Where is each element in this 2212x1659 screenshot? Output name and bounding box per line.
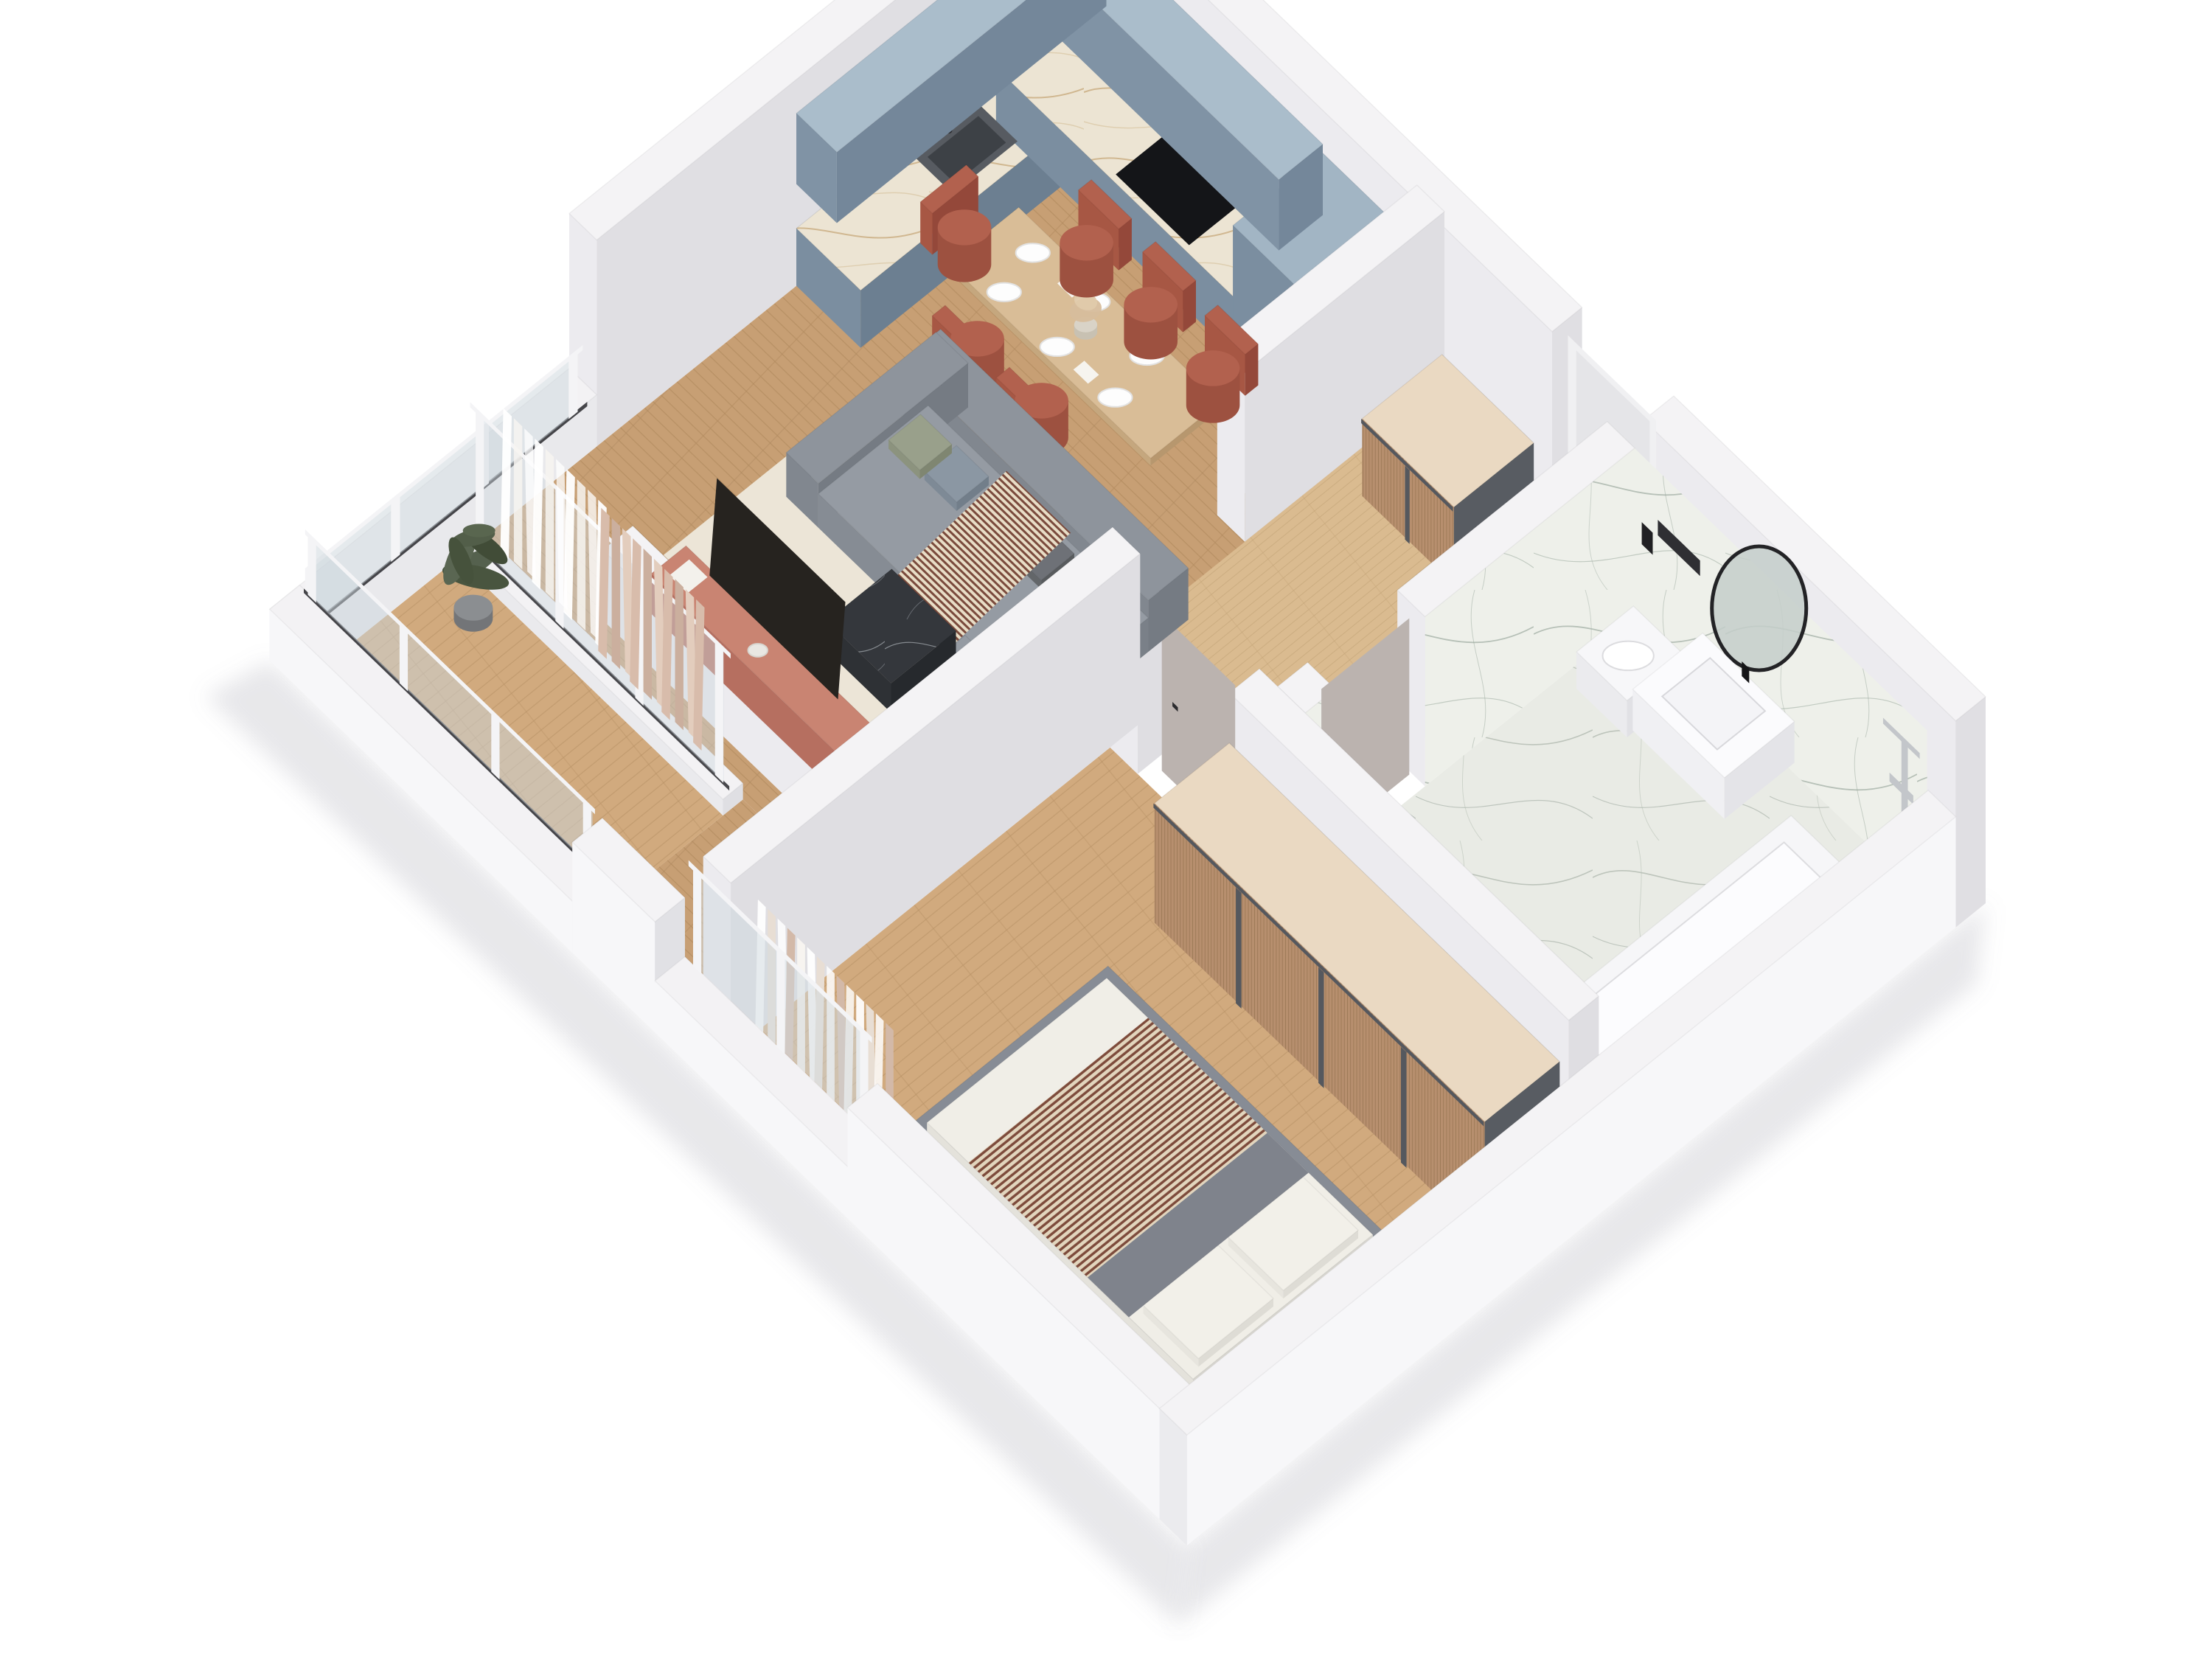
wardrobe-divider-2 (1318, 967, 1324, 1088)
plate-1 (1016, 243, 1050, 262)
wardrobe-divider-3 (1401, 1047, 1407, 1168)
bedroom-window-mullion-2 (776, 947, 785, 1055)
chair-1-seat (1060, 225, 1113, 297)
toilet-seat (1603, 641, 1654, 671)
partition-mullion-4 (715, 639, 723, 783)
floorplan-stage: Isometric 3D floor plan - one-bedroom ap… (0, 0, 2212, 1659)
floorplan-render: Isometric 3D floor plan - one-bedroom ap… (0, 0, 2212, 1659)
plate-4 (987, 283, 1021, 302)
wardrobe-divider-1 (1236, 888, 1242, 1009)
plant-leaf-7 (463, 524, 495, 538)
chair-3-seat (1186, 350, 1240, 422)
console-dish (748, 644, 768, 657)
apartment-model (206, 0, 1986, 1626)
plate-6 (1098, 388, 1132, 406)
hall-wardrobe-divider (1405, 466, 1410, 544)
chair-6-seat (938, 209, 992, 282)
plate-5 (1040, 338, 1074, 356)
chair-2-seat (1124, 287, 1178, 359)
bedroom-window-mullion-1 (693, 866, 701, 975)
bathroom-mirror (1712, 546, 1806, 670)
balcony-plant-pot (453, 595, 493, 632)
